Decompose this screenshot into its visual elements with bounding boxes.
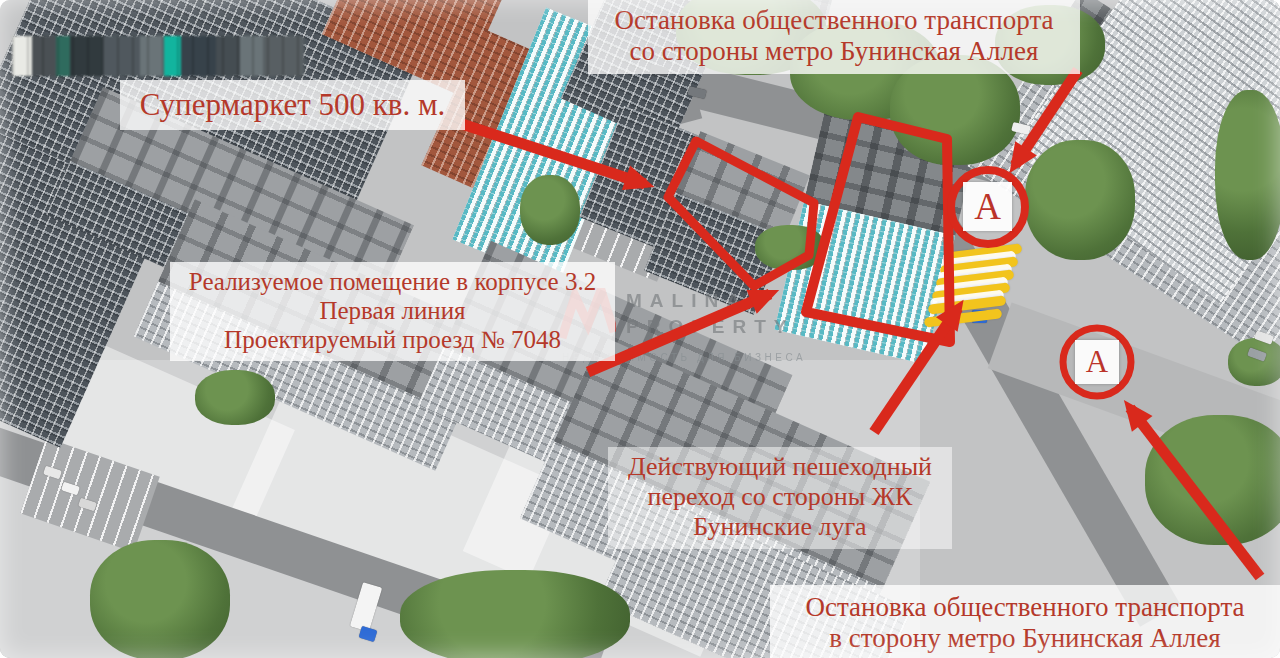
label-line: в сторону метро Бунинская Аллея [770,623,1280,654]
label-line: переход со стороны ЖК [608,482,952,512]
bus-stop-letter: А [1086,344,1108,380]
label-line: Остановка общественного транспорта [770,592,1280,623]
bus-stop-top-sign: А [963,182,1012,231]
pedestrian-crossing [918,240,1058,336]
label-line: Бунинские луга [608,512,952,542]
lawn [400,570,630,658]
watermark-brand: MALINA PROPERTY [626,288,795,339]
label-line: Реализуемое помещение в корпусе 3.2 [170,267,615,296]
watermark-brand-line1: MALINA [626,288,795,314]
label-line: Остановка общественного транспорта [588,5,1080,36]
label-line: Действующий пешеходный [608,452,952,482]
courtyard-green [520,175,580,245]
trees [1215,90,1280,260]
censored-logo-bar [12,36,304,76]
lawn [90,540,230,658]
trees [195,370,275,425]
aerial-render-scene: MALINA PROPERTY НЕДВИЖИМОСТЬ ДЛЯ БИЗНЕСА… [0,0,1280,658]
label-line: со стороны метро Бунинская Аллея [588,36,1080,67]
trees [1145,415,1280,545]
label-offer-unit: Реализуемое помещение в корпусе 3.2 Перв… [170,262,615,361]
bus-stop-bottom-sign: А [1075,340,1119,384]
label-line: Супермаркет 500 кв. м. [120,87,465,123]
bus-stop-letter: А [974,185,1001,228]
label-bus-stop-to-metro: Остановка общественного транспорта в сто… [770,585,1280,658]
lawn [1228,338,1280,386]
label-line: Первая линия [170,296,615,325]
label-supermarket: Супермаркет 500 кв. м. [120,80,465,130]
label-bus-stop-from-metro: Остановка общественного транспорта со ст… [588,0,1080,74]
label-line: Проектируемый проезд № 7048 [170,325,615,354]
label-crosswalk: Действующий пешеходный переход со сторон… [608,447,952,549]
courtyard-green [755,225,825,270]
watermark-brand-line2: PROPERTY [626,314,795,340]
